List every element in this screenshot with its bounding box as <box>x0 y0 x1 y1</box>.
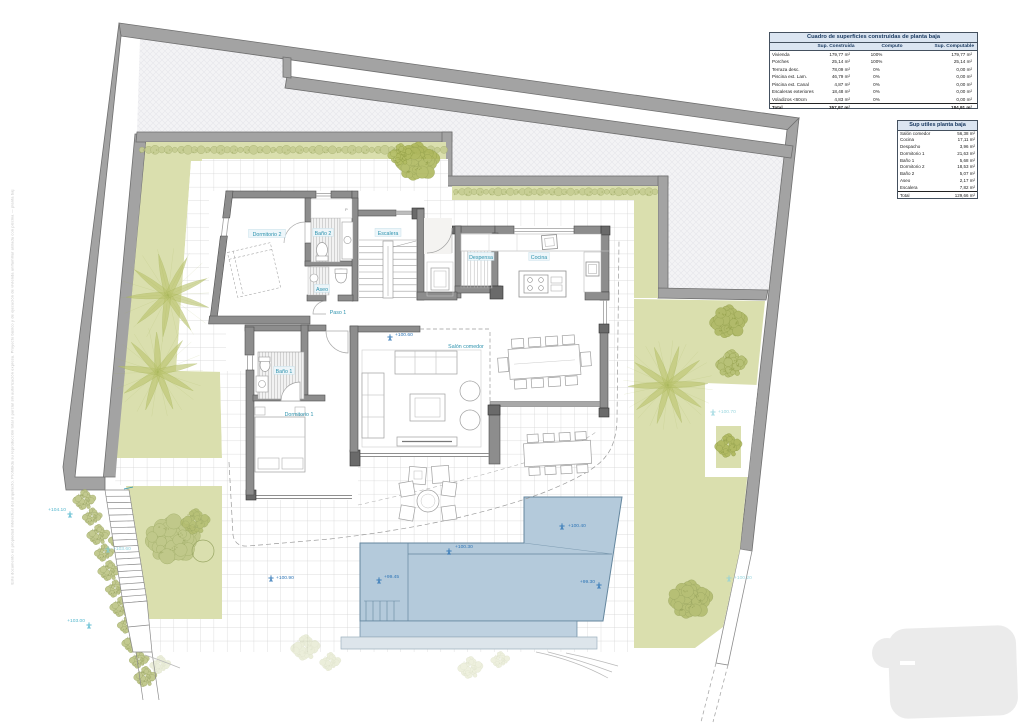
svg-text:Baño 2: Baño 2 <box>315 231 332 237</box>
svg-text:+100.90: +100.90 <box>276 575 294 581</box>
svg-text:Paso 1: Paso 1 <box>330 310 347 316</box>
svg-text:Dormitorio 1: Dormitorio 1 <box>285 412 314 418</box>
svg-text:Escalera: Escalera <box>378 231 399 237</box>
svg-text:+103.60: +103.60 <box>113 546 131 552</box>
svg-text:Despensa: Despensa <box>469 255 493 261</box>
svg-text:+99.30: +99.30 <box>580 579 595 585</box>
svg-text:+104.10: +104.10 <box>48 507 66 513</box>
svg-text:+100.20: +100.20 <box>734 575 752 581</box>
svg-text:Salón comedor: Salón comedor <box>448 344 484 350</box>
svg-text:+103.00: +103.00 <box>67 618 85 624</box>
svg-text:+100.60: +100.60 <box>395 332 413 338</box>
svg-text:Dormitorio 2: Dormitorio 2 <box>253 232 282 238</box>
svg-text:P: P <box>345 207 348 212</box>
svg-text:+100.30: +100.30 <box>455 544 473 550</box>
svg-text:Aseo: Aseo <box>316 287 328 293</box>
svg-text:+99.45: +99.45 <box>384 574 399 580</box>
svg-text:+100.40: +100.40 <box>568 523 586 529</box>
svg-text:Baño 1: Baño 1 <box>276 369 293 375</box>
svg-text:Cocina: Cocina <box>531 255 548 261</box>
svg-text:+100.70: +100.70 <box>718 409 736 415</box>
